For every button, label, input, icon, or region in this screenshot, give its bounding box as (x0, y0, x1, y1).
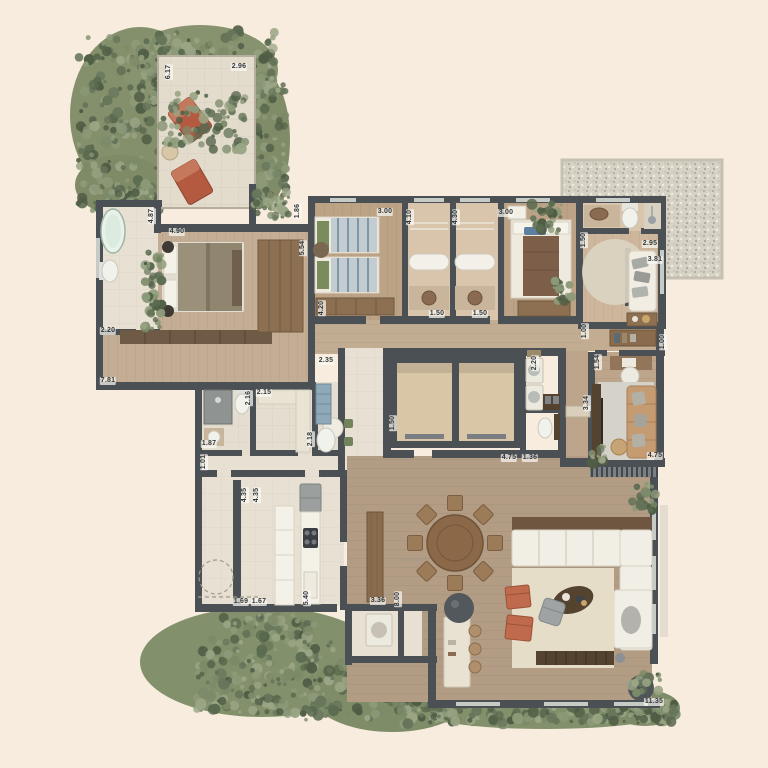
foliage (315, 696, 326, 707)
foliage (252, 189, 262, 199)
foliage (89, 152, 94, 157)
foliage (170, 101, 174, 105)
foliage (586, 458, 596, 468)
foliage (634, 485, 638, 489)
sink-basin (590, 208, 608, 220)
foliage (80, 87, 90, 97)
wall-segment (338, 348, 345, 472)
foliage (149, 195, 152, 198)
elevator-shaft (397, 363, 452, 441)
foliage (294, 675, 301, 682)
foliage (282, 165, 290, 173)
foliage (241, 676, 246, 681)
foliage (276, 708, 283, 715)
foliage (125, 178, 129, 182)
foliage (419, 713, 423, 717)
foliage (269, 181, 274, 186)
foliage (253, 199, 261, 207)
foliage (641, 487, 651, 497)
window (414, 198, 444, 202)
foliage (290, 663, 295, 668)
foliage (136, 185, 139, 188)
foliage (232, 51, 236, 55)
foliage (150, 42, 154, 46)
foliage (428, 720, 432, 724)
foliage (134, 92, 145, 103)
foliage (100, 103, 105, 108)
foliage (631, 679, 639, 687)
foliage (154, 166, 157, 169)
foliage (207, 635, 216, 644)
foliage (206, 650, 215, 659)
shower-head (648, 216, 656, 224)
foliage (261, 162, 270, 171)
sofa-corner (620, 530, 652, 566)
dining-chair (448, 496, 463, 511)
foliage (637, 722, 640, 725)
foliage (155, 42, 158, 45)
pillow (633, 413, 648, 428)
window (614, 702, 648, 706)
foliage (132, 161, 136, 165)
foliage (272, 82, 277, 87)
laundry-tub (317, 428, 335, 452)
foliage (82, 129, 92, 139)
foliage (327, 667, 333, 673)
foliage (551, 277, 560, 286)
foliage (175, 91, 181, 97)
foliage (248, 692, 255, 699)
balcony-glass (660, 505, 668, 637)
foliage (256, 94, 261, 99)
foliage (283, 669, 294, 680)
toilet (622, 208, 638, 228)
foliage (272, 633, 280, 641)
foliage (328, 705, 339, 716)
crib (508, 206, 526, 219)
foliage (588, 714, 593, 719)
foliage (239, 640, 244, 645)
foliage (240, 100, 244, 104)
bar-stool (469, 643, 481, 655)
foliage (230, 627, 237, 634)
foliage (264, 709, 269, 714)
foliage (282, 188, 291, 197)
foliage (141, 323, 147, 329)
foliage (184, 110, 189, 115)
foliage (318, 655, 322, 659)
window (652, 556, 656, 590)
foliage (283, 710, 291, 718)
foliage (234, 134, 238, 138)
foliage (141, 260, 151, 270)
foliage (90, 121, 100, 131)
foliage (242, 630, 250, 638)
wall-segment (345, 656, 437, 663)
foliage (207, 660, 215, 668)
foliage (230, 635, 239, 644)
foliage (636, 500, 646, 510)
floor-plan-drawing (0, 0, 768, 768)
foliage (300, 665, 306, 671)
foliage (223, 620, 231, 628)
foliage (228, 104, 236, 112)
foliage (317, 677, 322, 682)
foliage (276, 677, 280, 681)
pillow (631, 391, 646, 406)
foliage (335, 682, 346, 693)
foliage (211, 134, 215, 138)
foliage (215, 639, 218, 642)
foliage (326, 644, 330, 648)
foliage (161, 116, 167, 122)
foliage (258, 54, 268, 64)
foliage (116, 186, 120, 190)
foliage (274, 648, 278, 652)
wall-segment (402, 200, 408, 324)
window (330, 198, 356, 202)
foliage (151, 83, 154, 86)
foliage (111, 52, 117, 58)
foliage (339, 709, 342, 712)
foliage (555, 231, 560, 236)
accent-chair (505, 615, 533, 642)
foliage (219, 658, 223, 662)
foliage (215, 99, 223, 107)
foliage (212, 675, 220, 683)
foliage (78, 148, 84, 154)
foliage (119, 119, 123, 123)
foliage (662, 715, 666, 719)
foliage (544, 206, 553, 215)
foliage (238, 710, 241, 713)
foliage (632, 689, 641, 698)
foliage (567, 292, 576, 301)
foliage (302, 640, 307, 645)
foliage (127, 84, 133, 90)
foliage (262, 103, 266, 107)
foliage (256, 630, 267, 641)
foliage (598, 456, 606, 464)
foliage (207, 41, 213, 47)
wall-segment (520, 356, 526, 454)
foliage (280, 196, 284, 200)
foliage (329, 640, 333, 644)
foliage (116, 123, 127, 134)
foliage (235, 690, 243, 698)
foliage (155, 306, 160, 311)
foliage (260, 616, 264, 620)
foliage (527, 199, 538, 210)
foliage (277, 682, 281, 686)
foliage (204, 94, 208, 98)
foliage (252, 659, 255, 662)
foliage (648, 507, 654, 513)
foliage (222, 115, 226, 119)
foliage (157, 276, 167, 286)
foliage (288, 639, 296, 647)
sectional-sofa (512, 530, 622, 566)
foliage (141, 179, 151, 189)
window (596, 198, 630, 202)
foliage (77, 193, 87, 203)
wall-segment (250, 388, 256, 456)
foliage (280, 82, 285, 87)
foliage (616, 708, 621, 713)
dining-chair (488, 536, 503, 551)
foliage (313, 679, 316, 682)
bar-stool (469, 625, 481, 637)
pillow (631, 433, 645, 447)
shelf (554, 414, 560, 440)
foliage (288, 631, 295, 638)
foliage (169, 123, 175, 129)
pillow (317, 261, 329, 289)
foliage (241, 116, 247, 122)
wall-segment (96, 382, 316, 390)
foliage (308, 685, 313, 690)
foliage (306, 709, 311, 714)
foliage (124, 119, 128, 123)
foliage (330, 647, 335, 652)
foliage (90, 208, 95, 213)
foliage (322, 692, 325, 695)
foliage (256, 695, 260, 699)
foliage (101, 56, 105, 60)
foliage (139, 55, 145, 61)
foliage (199, 45, 206, 52)
foliage (75, 53, 84, 62)
throw-blanket (621, 606, 641, 634)
foliage (291, 693, 296, 698)
foliage (267, 615, 278, 626)
foliage (173, 33, 176, 36)
foliage (305, 649, 313, 657)
foliage (268, 207, 272, 211)
foliage (609, 716, 619, 726)
foliage (220, 109, 227, 116)
foliage (306, 663, 317, 674)
toilet (102, 260, 118, 282)
foliage (536, 224, 545, 233)
sink (208, 431, 220, 443)
foliage (83, 61, 89, 67)
foliage (83, 102, 89, 108)
window (544, 702, 588, 706)
wall-segment (380, 316, 490, 324)
foliage (108, 160, 111, 163)
foliage (263, 683, 267, 687)
foliage (371, 709, 380, 718)
dining-chair (408, 536, 423, 551)
foliage (566, 281, 574, 289)
foliage (193, 705, 201, 713)
foliage (307, 643, 310, 646)
foliage (296, 652, 307, 663)
foliage (210, 682, 216, 688)
cooktop (303, 528, 318, 548)
foliage (629, 716, 636, 723)
foliage (103, 125, 109, 131)
tv-screen (601, 398, 603, 446)
foliage (86, 35, 91, 40)
foliage (295, 618, 300, 623)
sink-basin (468, 291, 482, 305)
wall-segment (656, 322, 664, 467)
wall-segment (595, 350, 607, 356)
wall-segment (231, 470, 305, 477)
foliage (437, 715, 441, 719)
foliage (144, 117, 148, 121)
foliage (267, 64, 271, 68)
tv-bench (536, 651, 614, 665)
foliage (229, 656, 239, 666)
foliage (257, 645, 268, 656)
foliage (656, 673, 659, 676)
foliage (140, 64, 145, 69)
foliage (628, 497, 637, 506)
foliage (187, 38, 191, 42)
foliage (644, 482, 649, 487)
wall-segment (345, 604, 437, 611)
foliage (569, 720, 573, 724)
foliage (285, 211, 292, 218)
foliage (240, 685, 245, 690)
foliage (196, 675, 201, 680)
foliage (142, 134, 152, 144)
side-table (611, 439, 627, 455)
foliage (233, 621, 237, 625)
foliage (108, 87, 119, 98)
wall-segment (576, 200, 583, 324)
foliage (76, 162, 84, 170)
foliage (101, 42, 105, 46)
foliage (232, 675, 242, 685)
foliage (108, 189, 114, 195)
bar-stool (469, 661, 481, 673)
foliage (275, 88, 280, 93)
foliage (268, 44, 278, 54)
nightstand (313, 242, 329, 258)
desk-papers (622, 358, 636, 367)
foliage (272, 170, 281, 179)
foliage (299, 694, 303, 698)
foliage (90, 144, 94, 148)
foliage (265, 78, 268, 81)
foliage (153, 254, 162, 263)
foliage (342, 677, 348, 683)
foliage (290, 613, 295, 618)
foliage (417, 708, 421, 712)
foliage (172, 38, 182, 48)
planter (444, 593, 474, 623)
foliage (175, 124, 181, 130)
foliage (241, 663, 245, 667)
foliage (364, 715, 370, 721)
foliage (180, 111, 185, 116)
foliage (235, 143, 246, 154)
foliage (270, 28, 279, 37)
foliage (236, 649, 240, 653)
foliage (176, 117, 183, 124)
foliage (597, 451, 602, 456)
foliage (246, 620, 256, 630)
foliage (116, 197, 119, 200)
foliage (173, 110, 180, 117)
foliage (283, 682, 287, 686)
wall-segment (195, 604, 337, 612)
floor-plan-canvas: 6.172.964.874.901.865.542.207.814.203.00… (0, 0, 768, 768)
foliage (100, 185, 104, 189)
dining-chair (448, 576, 463, 591)
foliage (226, 115, 229, 118)
foliage (114, 158, 119, 163)
foliage (256, 172, 267, 183)
foliage (259, 154, 264, 159)
wall-segment (583, 228, 629, 234)
foliage (194, 38, 200, 44)
wall-segment (312, 316, 366, 324)
foliage (191, 105, 199, 113)
foliage (220, 126, 224, 130)
foliage (150, 46, 154, 50)
foliage (140, 188, 145, 193)
foliage (266, 38, 272, 44)
foliage (276, 204, 283, 211)
foliage (663, 699, 669, 705)
foliage (645, 673, 651, 679)
foliage (311, 622, 317, 628)
foliage (591, 455, 595, 459)
window (460, 198, 490, 202)
foliage (662, 706, 669, 713)
foliage (127, 69, 131, 73)
foliage (467, 718, 472, 723)
window (652, 604, 656, 634)
foliage (279, 698, 285, 704)
wall-segment (340, 470, 347, 542)
foliage (560, 203, 563, 206)
foliage (168, 131, 174, 137)
foliage (300, 710, 307, 717)
dresser (120, 330, 272, 344)
foliage (144, 262, 147, 265)
foliage (254, 682, 261, 689)
foliage (116, 56, 125, 65)
foliage (79, 109, 83, 113)
foliage (140, 88, 145, 93)
wall-segment (383, 450, 414, 458)
foliage (266, 660, 272, 666)
foliage (100, 166, 108, 174)
foliage (548, 200, 554, 206)
bedside-lamp (162, 241, 174, 253)
foliage (198, 141, 204, 147)
wall-segment (308, 196, 315, 388)
foliage (178, 49, 185, 56)
toilet (235, 394, 249, 414)
foliage (112, 107, 123, 118)
shelf (527, 350, 541, 357)
foliage (125, 46, 130, 51)
window (660, 250, 664, 294)
wall-segment (432, 450, 566, 458)
foliage (250, 680, 254, 684)
wall-segment (398, 611, 404, 660)
foliage (281, 143, 285, 147)
foliage (115, 190, 123, 198)
foliage (323, 709, 330, 716)
